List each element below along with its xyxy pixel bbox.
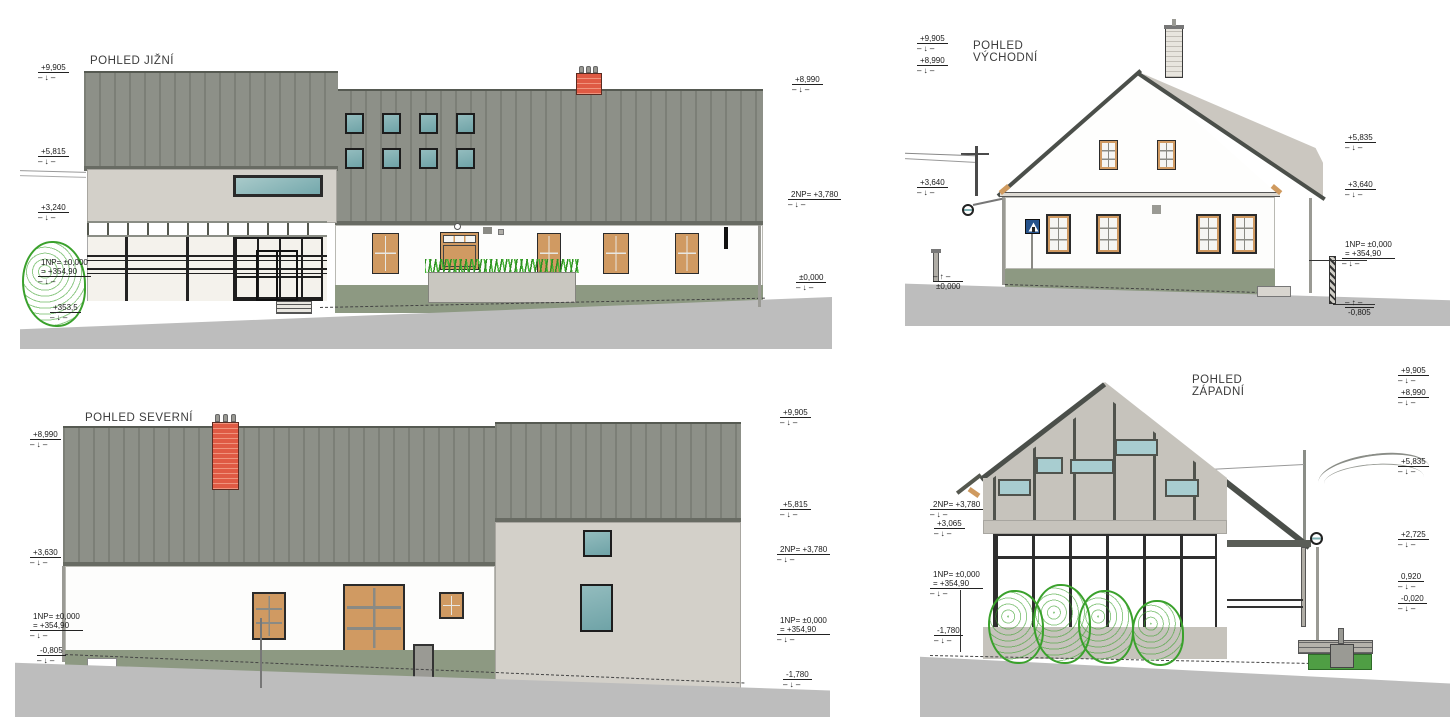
east-elevation-view: POHLEDVÝCHODNÍ +9,905 +8,990 +3,640 ±0,0… [905,28,1450,346]
wall-plaque [498,229,504,235]
east-elevation-title: POHLEDVÝCHODNÍ [973,40,1038,64]
gutter-drum [1310,532,1323,545]
level-arrow-icon [1345,190,1376,199]
level-arrow-icon [1345,298,1374,307]
chimney-pipe [1172,19,1176,26]
level-mark: +9,905 [780,408,811,427]
porch-post [1301,547,1306,627]
porch-beam [1227,540,1311,547]
attic-window [419,113,438,134]
downspout [1316,547,1319,647]
level-arrow-icon [1398,582,1424,591]
window [1046,214,1071,254]
south-elevation-title: POHLED JIŽNÍ [90,55,174,67]
level-mark: -1,780 [783,670,812,689]
level-mark: 1NP= ±0,000= +354,90 [777,616,830,644]
level-arrow-icon [50,313,81,322]
level-mark: 1NP= ±0,000= +354,90 [38,258,91,286]
level-arrow-icon [788,200,841,209]
level-arrow-icon [1345,143,1376,152]
window [603,233,629,274]
modern-window [583,530,612,557]
planter-plants [425,259,579,273]
window-large [343,584,405,652]
chimney-cap [231,414,236,422]
eaves-bracket [968,487,981,498]
level-mark: 2NP= +3,780 [788,190,841,209]
below-grade-hatch [1329,256,1336,304]
ribbon-window [233,175,323,197]
level-arrow-icon [930,510,983,519]
north-main-roof [63,426,495,567]
level-mark: 1NP= ±0,000= +354,90 [930,570,983,598]
entry-steps [276,301,312,314]
level-mark: +5,815 [780,500,811,519]
chimney-cap [593,66,598,73]
north-elevation-view: POHLED SEVERNÍ +8,990 +3,630 1NP= ±0,000… [15,400,830,717]
level-arrow-icon [930,589,983,598]
north-elevation-title: POHLED SEVERNÍ [85,412,193,424]
level-arrow-icon [1398,540,1429,549]
window [252,592,286,640]
south-modern-roof [84,71,338,171]
bollard-cap [931,249,941,253]
attic-window [456,113,475,134]
clerestory-band [87,221,327,237]
crosswalk-sign-icon [1025,219,1040,234]
level-mark: +8,990 [1398,388,1429,407]
downspout-mark [724,227,728,249]
level-mark: 2NP= +3,780 [777,545,830,564]
attic-window [456,148,475,169]
level-mark: +9,905 [38,63,69,82]
yard-pole [260,618,262,688]
gable-window [1157,140,1176,170]
porch-rail [1227,606,1303,608]
level-arrow-icon [30,440,61,449]
elevation-drawing-sheet: { "views": { "south": { "title": "POHLED… [0,0,1450,717]
vent-pipe [1338,628,1344,644]
level-arrow-icon [1342,259,1395,268]
chimney-cap [586,66,591,73]
level-mark: +2,725 [1398,530,1429,549]
level-arrow-icon [917,44,948,53]
level-arrow-icon [780,510,811,519]
north-modern-roof [495,422,741,523]
gutter-pipe [973,198,1003,206]
level-arrow-icon [38,157,69,166]
level-mark: +9,905 [917,34,948,53]
chimney-cap [223,414,228,422]
window-small [439,592,464,619]
level-mark: +5,835 [1398,457,1429,476]
level-mark: 1NP= ±0,000= +354,90 [1342,240,1395,268]
attic-window [345,113,364,134]
level-mark: 0,920 [1398,572,1424,591]
level-mark: ±0,000 [796,273,826,292]
opening-window [1036,457,1063,474]
level-arrow-icon [783,680,812,689]
downspout [1002,197,1005,285]
attic-window [382,113,401,134]
level-arrow-icon [780,418,811,427]
bush [1132,600,1184,666]
level-arrow-icon [37,656,66,665]
level-mark: +3,630 [30,548,61,567]
level-mark: ±0,000 [933,272,963,291]
chimney [212,422,239,490]
chimney-cap [579,66,584,73]
level-mark: +3,240 [38,203,69,222]
plinth-vent [1257,286,1291,297]
level-arrow-icon [777,635,830,644]
west-elevation-view: POHLEDZÁPADNÍ 2NP= +3,780 +3,065 1NP= ±0… [920,362,1450,717]
porch-rail [1227,599,1303,601]
floor-band [983,520,1227,534]
planter-box [428,272,576,303]
south-elevation-view: POHLED JIŽNÍ +9,905 [20,55,832,350]
level-mark: +5,815 [38,147,69,166]
chimney [576,73,602,95]
utility-box [1330,644,1354,668]
level-mark: -0,805 [37,646,66,665]
entry-lamp [454,223,461,230]
opening-window [998,479,1031,496]
level-arrow-icon [777,555,830,564]
level-mark: -0,020 [1398,594,1427,613]
chimney-cap [215,414,220,422]
level-arrow-icon [934,636,963,645]
level-arrow-icon [1398,398,1429,407]
level-mark: +8,990 [792,75,823,94]
level-mark: -1,780 [934,626,963,645]
level-mark: +8,990 [30,430,61,449]
opening-window [1115,439,1158,456]
attic-window [419,148,438,169]
level-arrow-icon [38,213,69,222]
level-arrow-icon [38,73,69,82]
downspout [1309,198,1312,293]
power-line [20,175,86,178]
wall-plaque [483,227,492,234]
attic-window [382,148,401,169]
opening-window [1165,479,1199,497]
chimney [1165,28,1183,78]
level-mark: +3,640 [1345,180,1376,199]
opening-window [1070,459,1114,474]
west-elevation-title: POHLEDZÁPADNÍ [1192,374,1245,398]
level-arrow-icon [796,283,826,292]
level-arrow-icon [1398,376,1429,385]
level-arrow-icon [30,631,83,640]
level-mark: -0,805 [1345,298,1374,317]
window [372,233,399,274]
window [1196,214,1221,254]
power-line [905,158,975,163]
level-mark: 1NP= ±0,000= +354,90 [30,612,83,640]
level-mark: +3,640 [917,178,948,197]
level-arrow-icon [38,277,91,286]
window [1232,214,1257,254]
level-arrow-icon [917,66,948,75]
power-line [20,170,86,173]
attic-window [345,148,364,169]
downspout [758,225,761,307]
gable-window [1099,140,1118,170]
level-mark: +353,5 [50,303,81,322]
level-mark: +9,905 [1398,366,1429,385]
window [675,233,699,274]
window [1096,214,1121,254]
bush [1078,590,1134,664]
glazed-entry-door [256,250,298,301]
level-arrow-icon [1398,604,1427,613]
level-arrow-icon [792,85,823,94]
level-mark: +5,835 [1345,133,1376,152]
modern-window [580,584,613,632]
level-arrow-icon [934,529,965,538]
level-value: +9,905 [38,63,69,73]
porch-post [186,237,189,301]
porch-post [125,237,128,301]
level-arrow-icon [917,188,948,197]
wall-vent-box [1152,205,1161,214]
level-mark: +3,065 [934,519,965,538]
level-mark: 2NP= +3,780 [930,500,983,519]
level-arrow-icon [933,272,963,281]
level-mark: +8,990 [917,56,948,75]
level-arrow-icon [30,558,61,567]
level-arrow-icon [1398,467,1429,476]
